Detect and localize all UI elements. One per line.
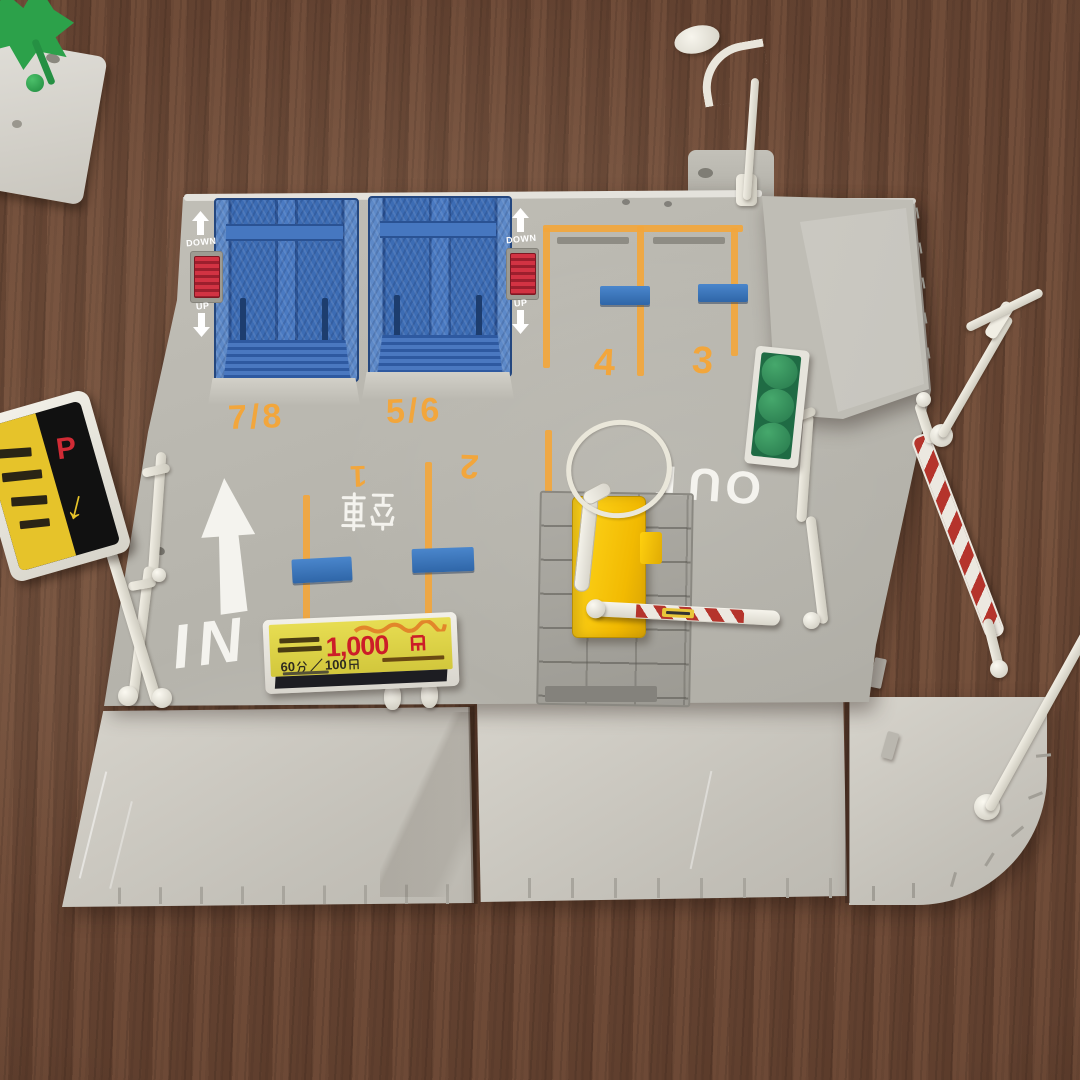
sign-pole-foot	[152, 688, 172, 708]
lift-down-label: DOWN	[186, 236, 217, 249]
price-line1-text2	[278, 646, 322, 653]
price-amount-note	[382, 655, 444, 662]
plate-seam	[468, 706, 477, 904]
floor-slot	[653, 237, 725, 244]
ticket-machine-side-tab	[640, 532, 662, 564]
lamp-socket-hole	[698, 168, 713, 178]
wheel-stop	[291, 556, 352, 583]
down-arrow-icon	[512, 310, 529, 334]
corner-plate-hole	[12, 120, 22, 128]
hazard-rail-foot	[990, 660, 1008, 678]
p-letter: P	[54, 431, 79, 467]
space-number-3: 3	[691, 339, 714, 383]
lift-crossbar	[226, 224, 343, 241]
plate-clip-tab	[869, 657, 887, 689]
space-number-4: 4	[593, 341, 616, 385]
lift-crossbar	[380, 221, 496, 238]
lift-up-label: UP	[514, 297, 528, 308]
space-line	[543, 228, 550, 368]
lift-red-lever	[510, 253, 536, 295]
yen-kanji-small	[348, 658, 360, 670]
sign-down-arrow: ↓	[61, 482, 91, 531]
fence-foot	[803, 612, 820, 629]
up-arrow-icon	[512, 208, 529, 232]
lift-up-label: UP	[196, 300, 210, 311]
yen-kanji	[407, 632, 430, 655]
up-arrow-icon	[192, 211, 209, 235]
photo-scene: 4 3 1 2 IN OUT 7/8 DOWN U	[0, 0, 1080, 1080]
lamp-pole	[937, 315, 1014, 439]
lift-red-lever	[194, 256, 220, 298]
floor-slot	[557, 237, 629, 244]
price-line1-text	[279, 637, 319, 644]
parking-entrance-sign: P ↓	[0, 388, 133, 584]
hedge-planter	[744, 346, 810, 469]
sign-inner: P ↓	[0, 401, 120, 572]
guardrail-foot	[118, 686, 138, 706]
price-signboard: 1,000 60 ／ 100	[262, 612, 459, 694]
plate-clip-tab	[881, 731, 900, 760]
plate-seam	[845, 698, 850, 903]
lift-level-label-right: 5/6	[385, 391, 443, 432]
guardrail-foot	[152, 568, 166, 582]
fence-right-rail	[805, 516, 828, 624]
street-tree-base	[26, 74, 44, 92]
price-sign-face: 1,000 60 ／ 100	[269, 617, 453, 677]
wheel-stop	[412, 547, 475, 573]
wheel-stop	[600, 286, 650, 305]
in-arrow-marking	[193, 474, 265, 620]
vacant-marking	[340, 492, 397, 533]
lift-down-label: DOWN	[506, 233, 537, 246]
tomica-logo-sticker	[662, 608, 694, 619]
hazard-rail-cap	[916, 392, 931, 407]
space-number-2: 2	[459, 446, 479, 486]
island-curb-dark	[545, 686, 657, 702]
lift-level-label-left: 7/8	[227, 397, 285, 438]
hazard-guardrail	[910, 432, 1006, 641]
lamp-head	[671, 21, 722, 58]
space-number-1: 1	[349, 458, 367, 493]
down-arrow-icon	[193, 313, 210, 337]
wheel-stop	[698, 284, 748, 302]
